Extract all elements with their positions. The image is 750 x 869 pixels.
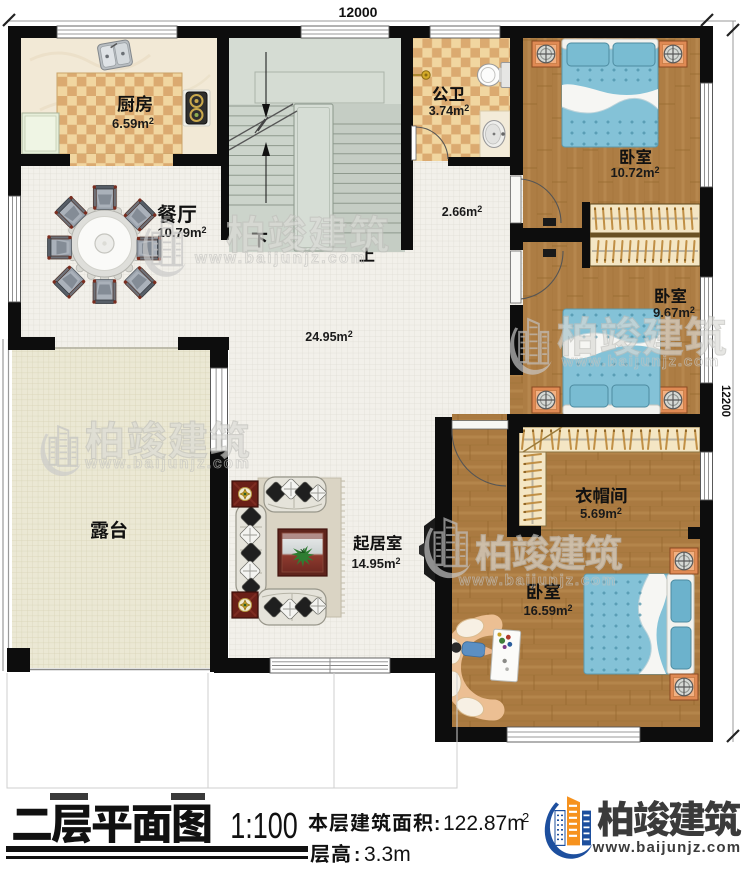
svg-text:www.baijunjz.com: www.baijunjz.com: [458, 572, 617, 589]
svg-text:1:100: 1:100: [230, 805, 298, 846]
svg-text:5.69m2: 5.69m2: [580, 506, 622, 521]
svg-text:6.59m2: 6.59m2: [112, 116, 154, 131]
svg-text:3.74m2: 3.74m2: [429, 103, 469, 118]
svg-text:122.87m: 122.87m: [443, 812, 525, 835]
svg-text:www.baijunjz.com: www.baijunjz.com: [592, 839, 742, 856]
svg-text:16.59m2: 16.59m2: [523, 603, 572, 618]
svg-text:2: 2: [522, 810, 529, 825]
svg-text:12200: 12200: [719, 385, 731, 417]
svg-text:14.95m2: 14.95m2: [351, 556, 400, 571]
svg-text:www.baijunjz.com: www.baijunjz.com: [194, 250, 367, 267]
svg-text:12000: 12000: [339, 4, 378, 20]
svg-text::: :: [354, 845, 360, 866]
svg-text:24.95m2: 24.95m2: [305, 329, 352, 344]
svg-text:3.3m: 3.3m: [364, 843, 411, 866]
svg-text:www.baijunjz.com: www.baijunjz.com: [84, 455, 251, 472]
svg-text:www.baijunjz.com: www.baijunjz.com: [561, 353, 720, 370]
svg-text:9.67m2: 9.67m2: [653, 305, 695, 320]
svg-text::: :: [434, 814, 440, 835]
svg-text:2.66m2: 2.66m2: [442, 204, 482, 219]
svg-text:10.72m2: 10.72m2: [610, 165, 659, 180]
